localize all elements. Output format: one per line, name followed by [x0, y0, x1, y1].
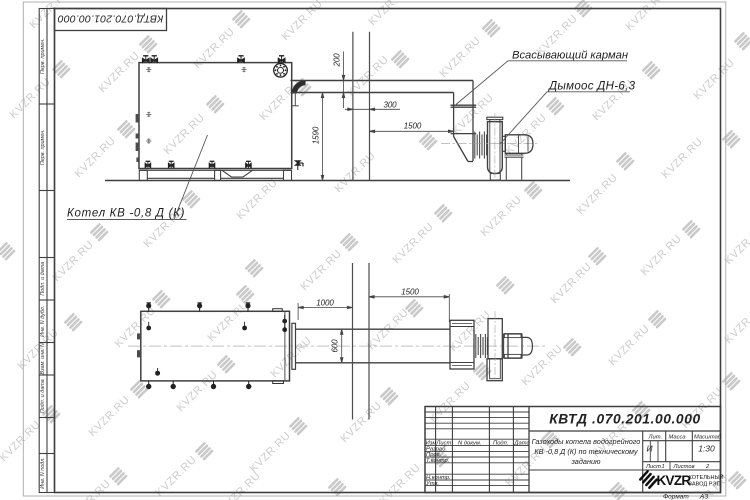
svg-text:KVZR.RU: KVZR.RU [333, 150, 379, 196]
svg-text:Подп. и дата: Подп. и дата [40, 262, 46, 296]
svg-text:KVZR.RU: KVZR.RU [607, 323, 653, 369]
svg-text:KVZR.RU: KVZR.RU [438, 35, 484, 81]
svg-text:KVZR.RU: KVZR.RU [391, 221, 437, 267]
svg-text:И: И [647, 444, 654, 454]
svg-text:KVZR.RU: KVZR.RU [723, 301, 750, 347]
svg-text:KVZR.RU: KVZR.RU [660, 136, 706, 182]
svg-text:KVZR.RU: KVZR.RU [192, 26, 238, 72]
svg-text:KVZR.RU: KVZR.RU [639, 233, 685, 279]
svg-text:KVZR: KVZR [657, 473, 692, 488]
svg-text:КВТД .070.201.00.000: КВТД .070.201.00.000 [549, 412, 701, 427]
svg-text:Формат: Формат [663, 494, 689, 500]
svg-text:KVZR.RU: KVZR.RU [248, 430, 294, 476]
svg-text:KVZR.RU: KVZR.RU [73, 135, 119, 181]
svg-text:Перв. примен.: Перв. примен. [40, 38, 46, 74]
svg-text:1:30: 1:30 [698, 444, 715, 454]
svg-text:Листов: Листов [673, 464, 695, 470]
svg-text:КВТД.070.201.00.000: КВТД.070.201.00.000 [58, 13, 164, 25]
svg-text:Масштаб: Масштаб [694, 434, 722, 440]
svg-text:KVZR.RU: KVZR.RU [87, 394, 133, 440]
svg-text:Масса: Масса [669, 434, 687, 440]
svg-text:1: 1 [662, 464, 665, 470]
svg-text:KVZR.RU: KVZR.RU [51, 239, 97, 285]
svg-text:KVZR.RU: KVZR.RU [624, 0, 670, 33]
svg-text:Изм: Изм [426, 440, 437, 446]
svg-text:KVZR.RU: KVZR.RU [575, 172, 621, 218]
svg-text:Подп.: Подп. [493, 440, 508, 446]
svg-text:KVZR.RU: KVZR.RU [175, 369, 221, 415]
svg-text:KVZR.RU: KVZR.RU [162, 112, 208, 158]
svg-text:Перв. примен.: Перв. примен. [40, 129, 46, 165]
svg-text:КВ -0,8 Д (К) по техническо: КВ -0,8 Д (К) по техническому [534, 447, 639, 456]
svg-text:Всасывающий карман: Всасывающий карман [512, 50, 628, 62]
svg-text:KVZR.RU: KVZR.RU [367, 0, 413, 28]
svg-text:KVZR.RU: KVZR.RU [479, 194, 525, 240]
svg-text:1500: 1500 [401, 288, 419, 297]
svg-text:KVZR.RU: KVZR.RU [235, 177, 281, 223]
svg-text:KVZR.RU: KVZR.RU [68, 478, 114, 500]
svg-text:KVZR.RU: KVZR.RU [280, 0, 326, 43]
svg-text:1000: 1000 [316, 299, 334, 308]
svg-text:1590: 1590 [311, 126, 320, 144]
svg-text:KVZR.RU: KVZR.RU [520, 343, 566, 389]
svg-text:600: 600 [331, 339, 340, 353]
svg-text:KVZR.RU: KVZR.RU [299, 248, 345, 294]
svg-text:Котел КВ -0,8 Д (К): Котел КВ -0,8 Д (К) [67, 208, 185, 220]
svg-text:KVZR.RU: KVZR.RU [8, 76, 54, 122]
svg-text:300: 300 [383, 101, 397, 110]
svg-text:Инв. N подл.: Инв. N подл. [40, 457, 46, 489]
svg-text:KVZR.RU: KVZR.RU [428, 380, 474, 426]
svg-text:Взам. инв. N: Взам. инв. N [40, 343, 46, 375]
svg-text:А3: А3 [699, 494, 708, 500]
svg-text:KVZR.RU: KVZR.RU [378, 462, 424, 500]
svg-text:2: 2 [705, 464, 710, 470]
svg-text:Т.контр.: Т.контр. [426, 458, 449, 464]
svg-text:KVZR.RU: KVZR.RU [339, 400, 385, 446]
svg-text:Подп. и дата: Подп. и дата [40, 379, 46, 413]
svg-text:ЗАВОД РЭП: ЗАВОД РЭП [689, 482, 721, 488]
svg-text:Лист: Лист [435, 440, 451, 446]
svg-text:KVZR.RU: KVZR.RU [549, 261, 595, 307]
svg-text:Дата: Дата [513, 440, 530, 446]
svg-text:Лист: Лист [645, 464, 661, 470]
svg-text:1500: 1500 [404, 122, 422, 131]
svg-text:заданию: заданию [570, 457, 601, 466]
svg-text:КОТЕЛЬНЫЙ: КОТЕЛЬНЫЙ [689, 473, 724, 481]
svg-text:KVZR.RU: KVZR.RU [692, 57, 738, 103]
svg-text:Инв. N дубл.: Инв. N дубл. [40, 306, 46, 337]
svg-text:Газоходы котела водогрейного: Газоходы котела водогрейного [532, 437, 641, 446]
svg-text:200: 200 [333, 53, 342, 68]
svg-text:KVZR.RU: KVZR.RU [97, 50, 143, 96]
svg-text:KVZR.RU: KVZR.RU [448, 309, 494, 355]
svg-text:Дымоос ДН-6,3: Дымоос ДН-6,3 [547, 81, 636, 93]
svg-text:N докум.: N докум. [458, 440, 481, 446]
svg-text:KVZR.RU: KVZR.RU [0, 419, 43, 465]
svg-text:KVZR.RU: KVZR.RU [206, 299, 252, 345]
svg-text:Утв.: Утв. [425, 481, 439, 487]
svg-text:KVZR.RU: KVZR.RU [723, 222, 750, 268]
svg-text:Лит.: Лит. [648, 434, 663, 440]
